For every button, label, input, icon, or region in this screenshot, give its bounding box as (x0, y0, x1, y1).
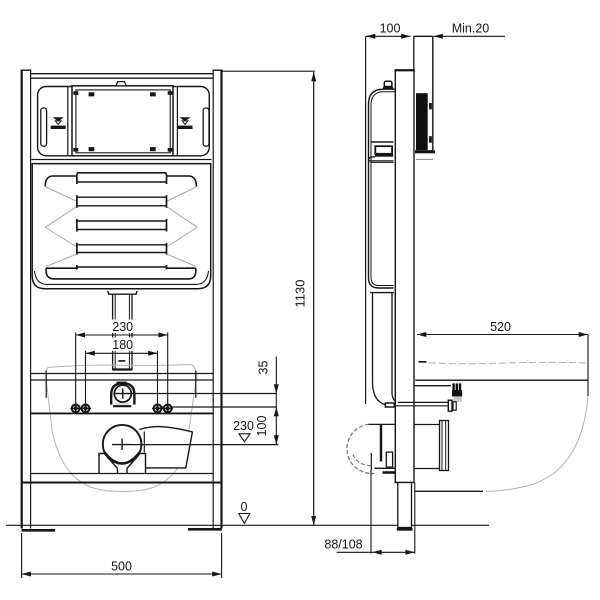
svg-text:520: 520 (490, 320, 511, 334)
svg-text:88/108: 88/108 (324, 537, 362, 551)
svg-text:1130: 1130 (293, 280, 308, 308)
svg-text:230: 230 (233, 419, 254, 433)
svg-text:500: 500 (111, 560, 132, 574)
svg-text:100: 100 (255, 416, 269, 437)
svg-text:230: 230 (112, 320, 133, 334)
svg-text:180: 180 (112, 338, 133, 352)
svg-text:Min.20: Min.20 (452, 22, 490, 36)
svg-text:35: 35 (257, 361, 271, 375)
svg-text:0: 0 (241, 500, 248, 514)
svg-text:100: 100 (380, 22, 401, 36)
